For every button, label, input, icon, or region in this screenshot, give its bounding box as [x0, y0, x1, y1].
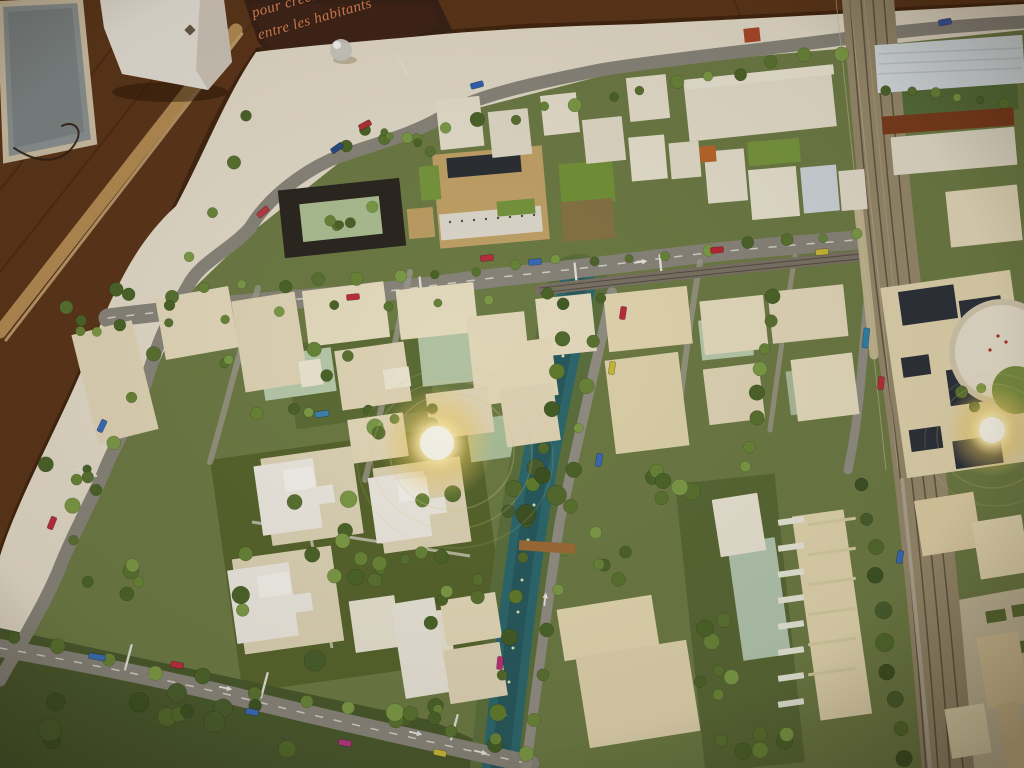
city-model-photo: pour créer un lien entre les habitants — [0, 0, 1024, 768]
lighting — [0, 0, 1024, 768]
model-scene — [0, 0, 1024, 768]
vig — [0, 0, 1024, 768]
